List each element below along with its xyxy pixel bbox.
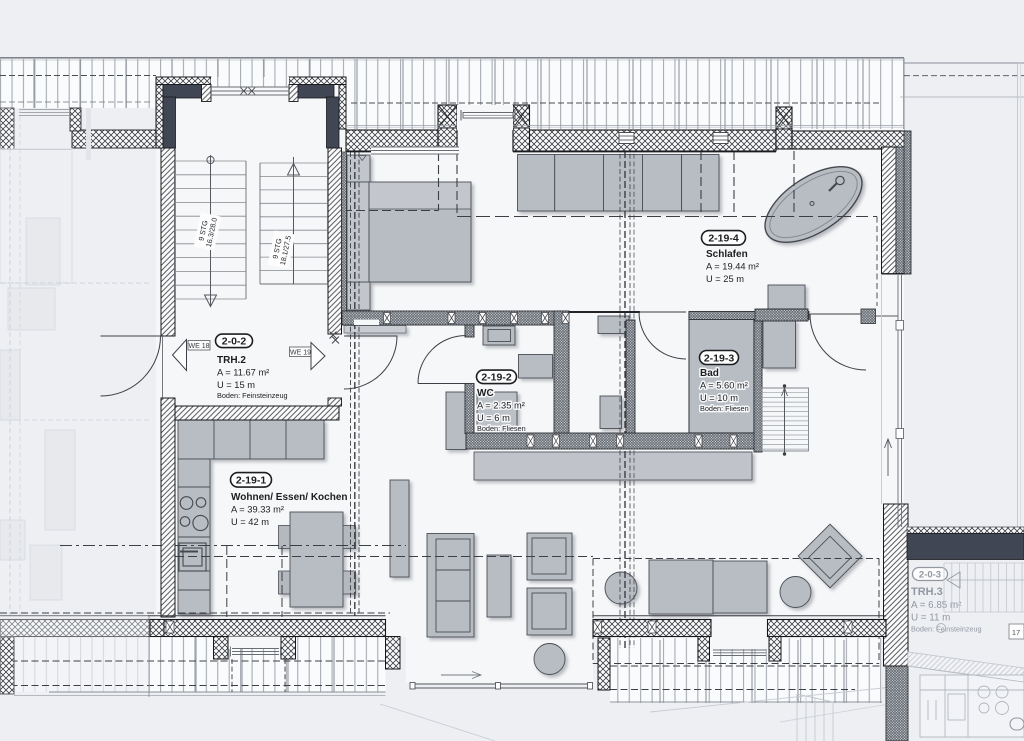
svg-text:2-19-2: 2-19-2 — [481, 372, 512, 384]
svg-text:Boden: Fliesen: Boden: Fliesen — [477, 424, 526, 433]
svg-text:TRH.3: TRH.3 — [911, 586, 943, 598]
svg-text:U = 25 m: U = 25 m — [706, 274, 744, 284]
svg-text:WE 19: WE 19 — [290, 350, 311, 357]
svg-text:A = 11.67 m²: A = 11.67 m² — [217, 368, 269, 378]
svg-text:2-19-4: 2-19-4 — [708, 233, 739, 245]
svg-text:2-19-1: 2-19-1 — [236, 475, 267, 487]
svg-text:U = 11 m: U = 11 m — [911, 613, 950, 624]
svg-text:TRH.2: TRH.2 — [217, 355, 246, 366]
svg-text:U = 42 m: U = 42 m — [231, 517, 269, 527]
svg-text:WE 18: WE 18 — [188, 343, 209, 350]
svg-text:Wohnen/ Essen/ Kochen: Wohnen/ Essen/ Kochen — [231, 492, 348, 503]
svg-text:2-19-3: 2-19-3 — [704, 352, 735, 364]
svg-text:U = 15 m: U = 15 m — [217, 380, 255, 390]
svg-text:Boden: Feinsteinzeug: Boden: Feinsteinzeug — [911, 625, 982, 634]
svg-text:A = 2.35 m²: A = 2.35 m² — [477, 401, 525, 411]
svg-text:17: 17 — [1012, 628, 1020, 637]
svg-text:Bad: Bad — [700, 368, 719, 379]
svg-text:Boden: Feinsteinzeug: Boden: Feinsteinzeug — [217, 391, 288, 400]
svg-text:Schlafen: Schlafen — [706, 249, 748, 260]
svg-text:U = 10 m: U = 10 m — [700, 393, 738, 403]
svg-text:2-0-2: 2-0-2 — [222, 336, 247, 348]
svg-text:A = 6.85 m²: A = 6.85 m² — [911, 600, 962, 611]
svg-text:2-0-3: 2-0-3 — [919, 569, 941, 580]
svg-text:A = 5.60 m²: A = 5.60 m² — [700, 381, 748, 391]
svg-text:A = 39.33 m²: A = 39.33 m² — [231, 505, 284, 515]
svg-text:Boden: Fliesen: Boden: Fliesen — [700, 404, 749, 413]
svg-text:WC: WC — [477, 388, 494, 399]
svg-text:A = 19.44 m²: A = 19.44 m² — [706, 262, 759, 272]
svg-text:U = 6 m: U = 6 m — [477, 413, 510, 423]
